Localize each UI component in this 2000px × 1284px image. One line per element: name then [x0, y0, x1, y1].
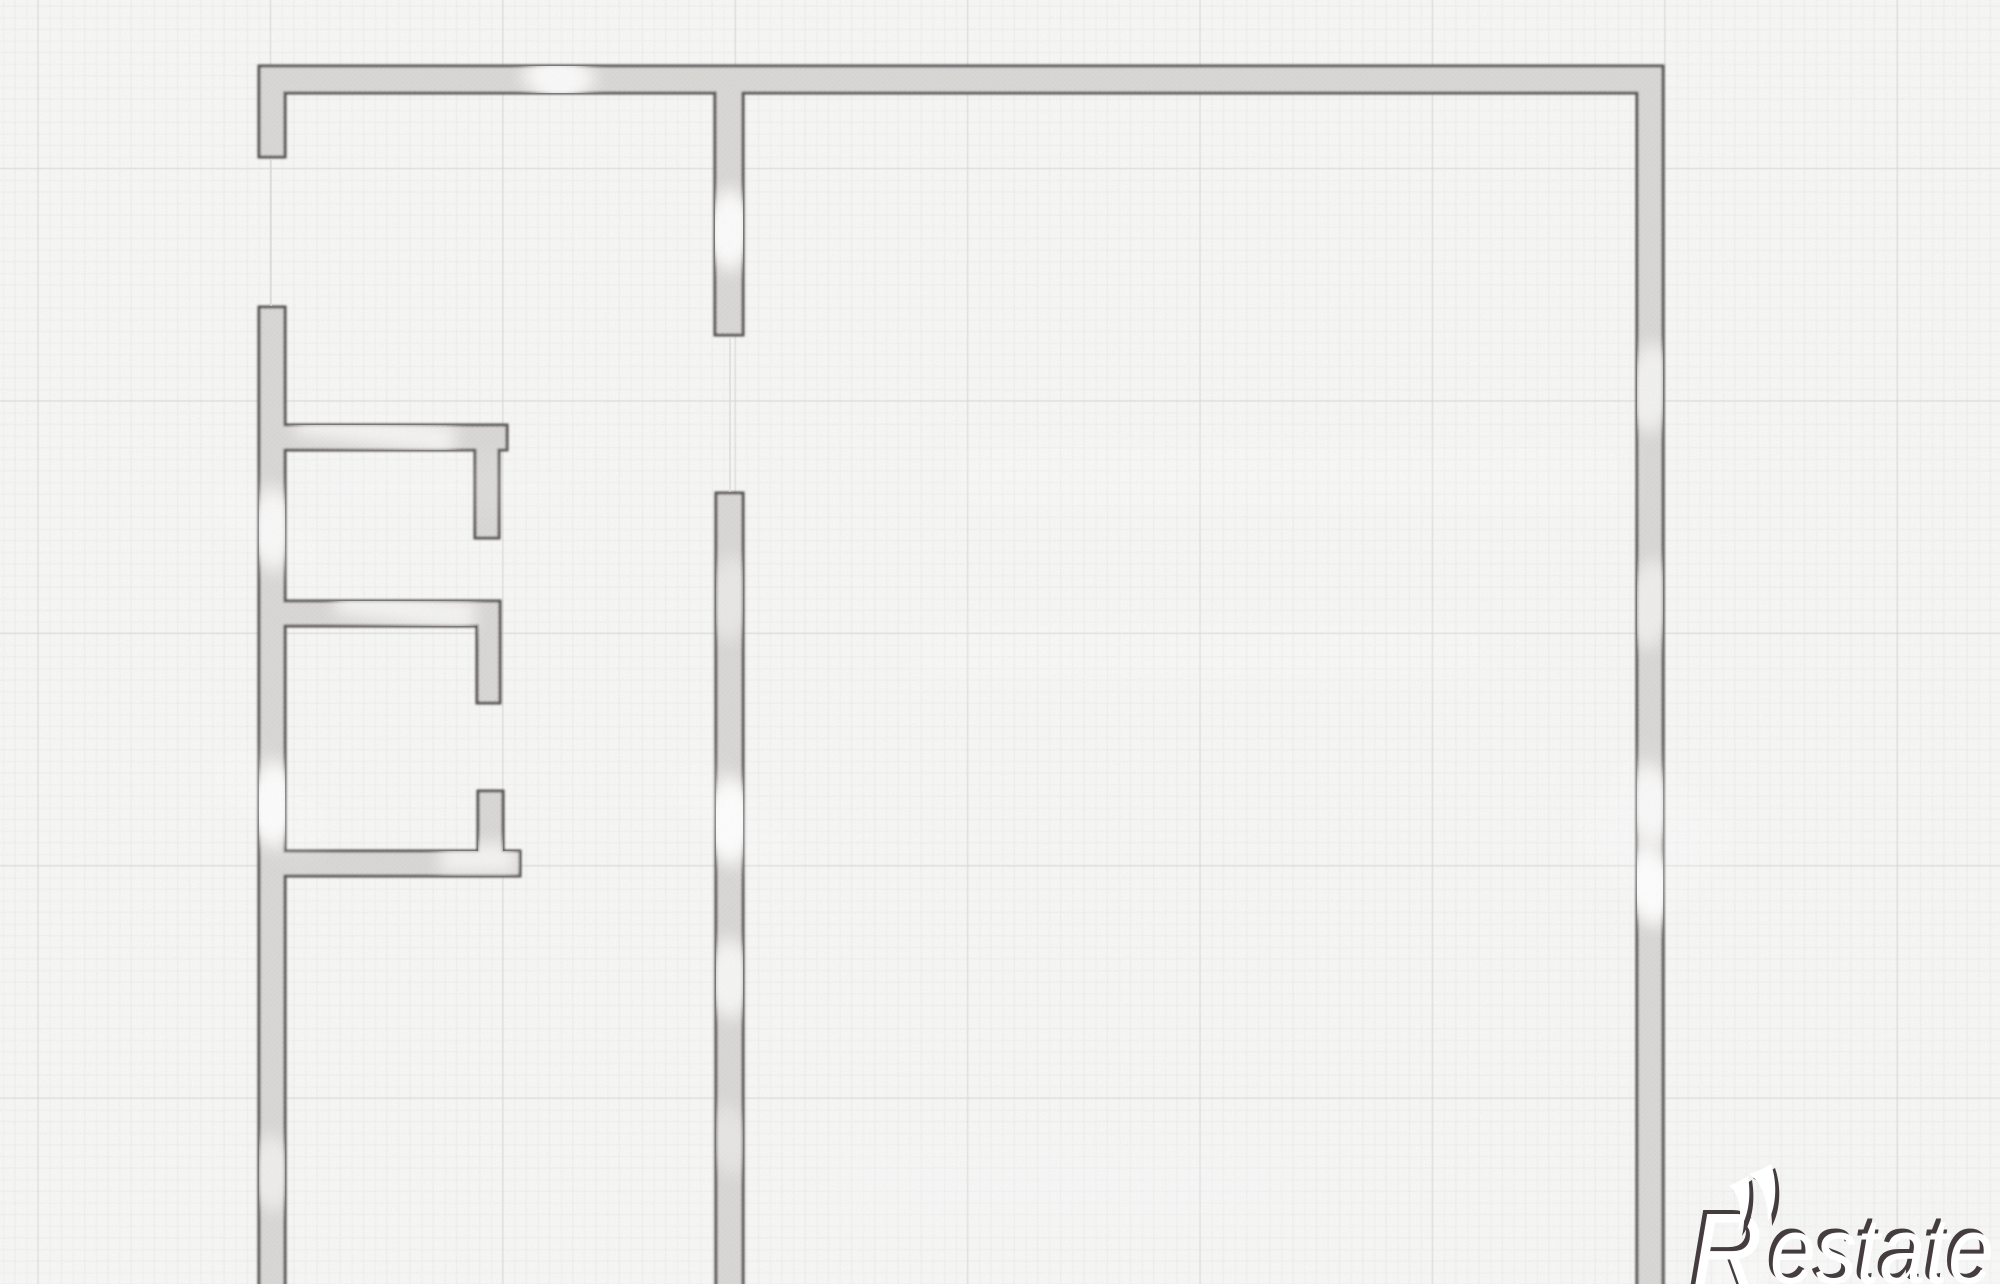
- svg-text:estate: estate: [1770, 1198, 1994, 1284]
